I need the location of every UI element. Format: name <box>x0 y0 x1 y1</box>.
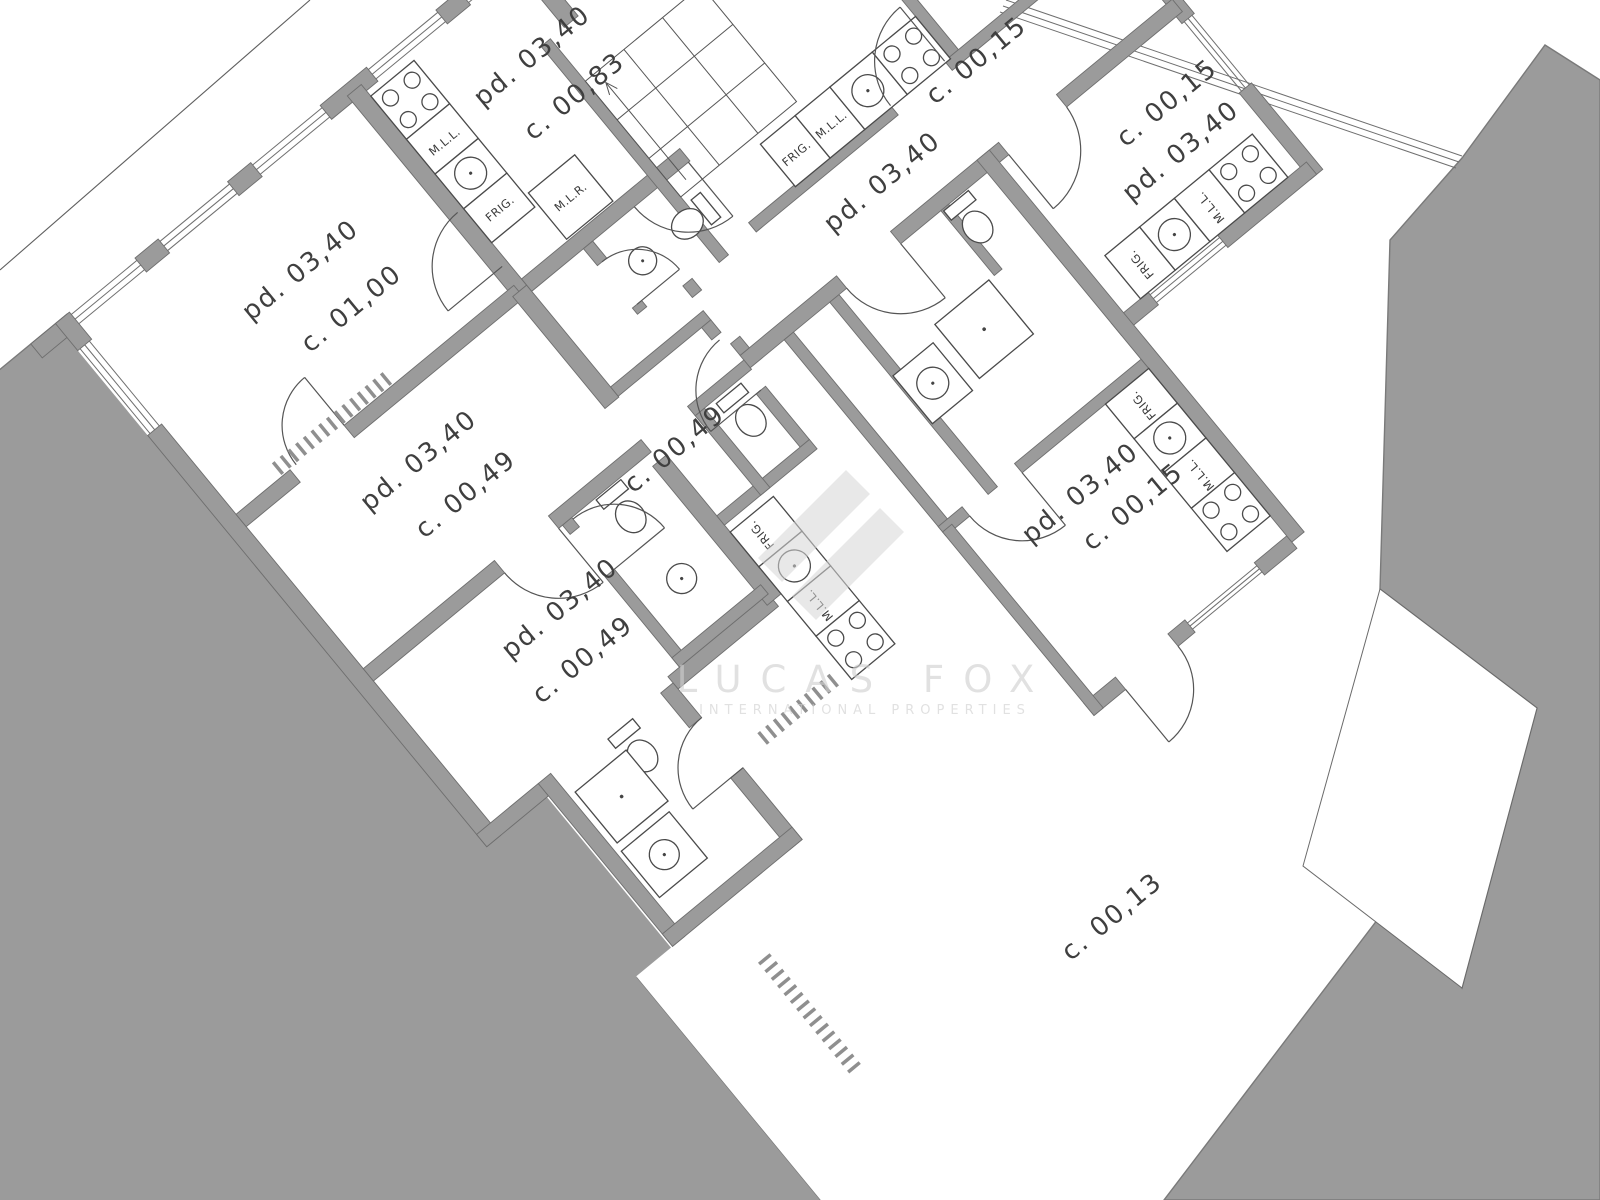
watermark-brand: LUCAS FOX <box>677 658 1054 701</box>
watermark-tagline: INTERNATIONAL PROPERTIES <box>699 703 1031 718</box>
floorplan-screenshot: M.L.L. FRIG. M.L.R. FRIG. M.L.L. FR <box>0 0 1600 1200</box>
floorplan-svg: M.L.L. FRIG. M.L.R. FRIG. M.L.L. FR <box>0 0 1600 1200</box>
